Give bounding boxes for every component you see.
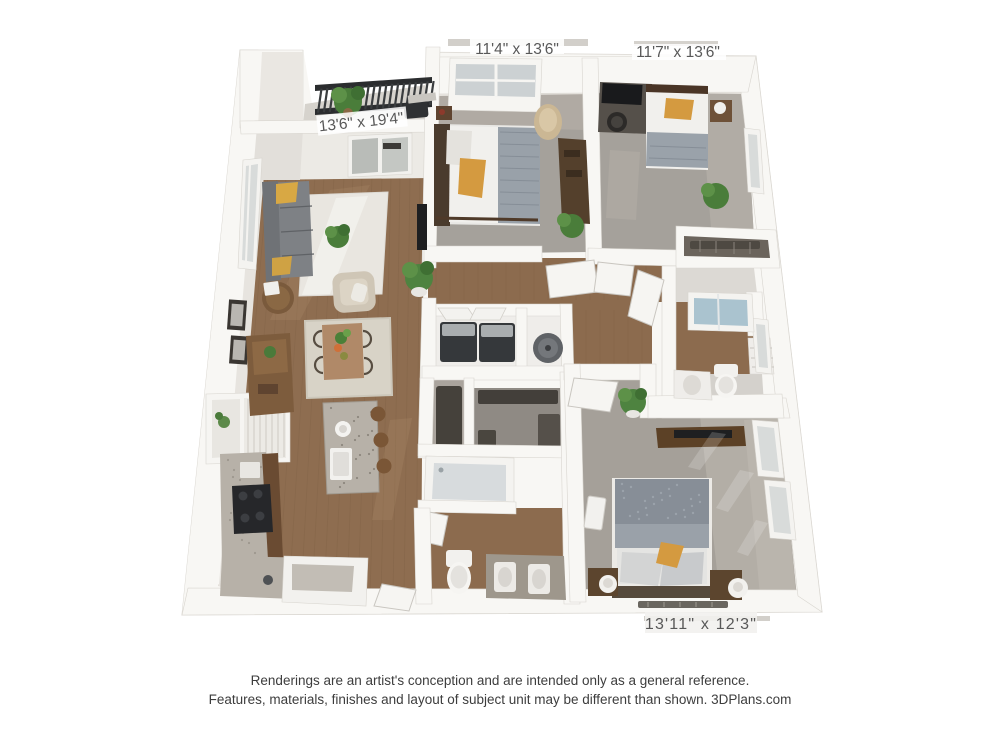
svg-text:11'4" x 13'6": 11'4" x 13'6" bbox=[475, 41, 559, 58]
svg-text:13'11" x 12'3": 13'11" x 12'3" bbox=[645, 616, 757, 633]
svg-text:11'7" x 13'6": 11'7" x 13'6" bbox=[636, 44, 720, 61]
